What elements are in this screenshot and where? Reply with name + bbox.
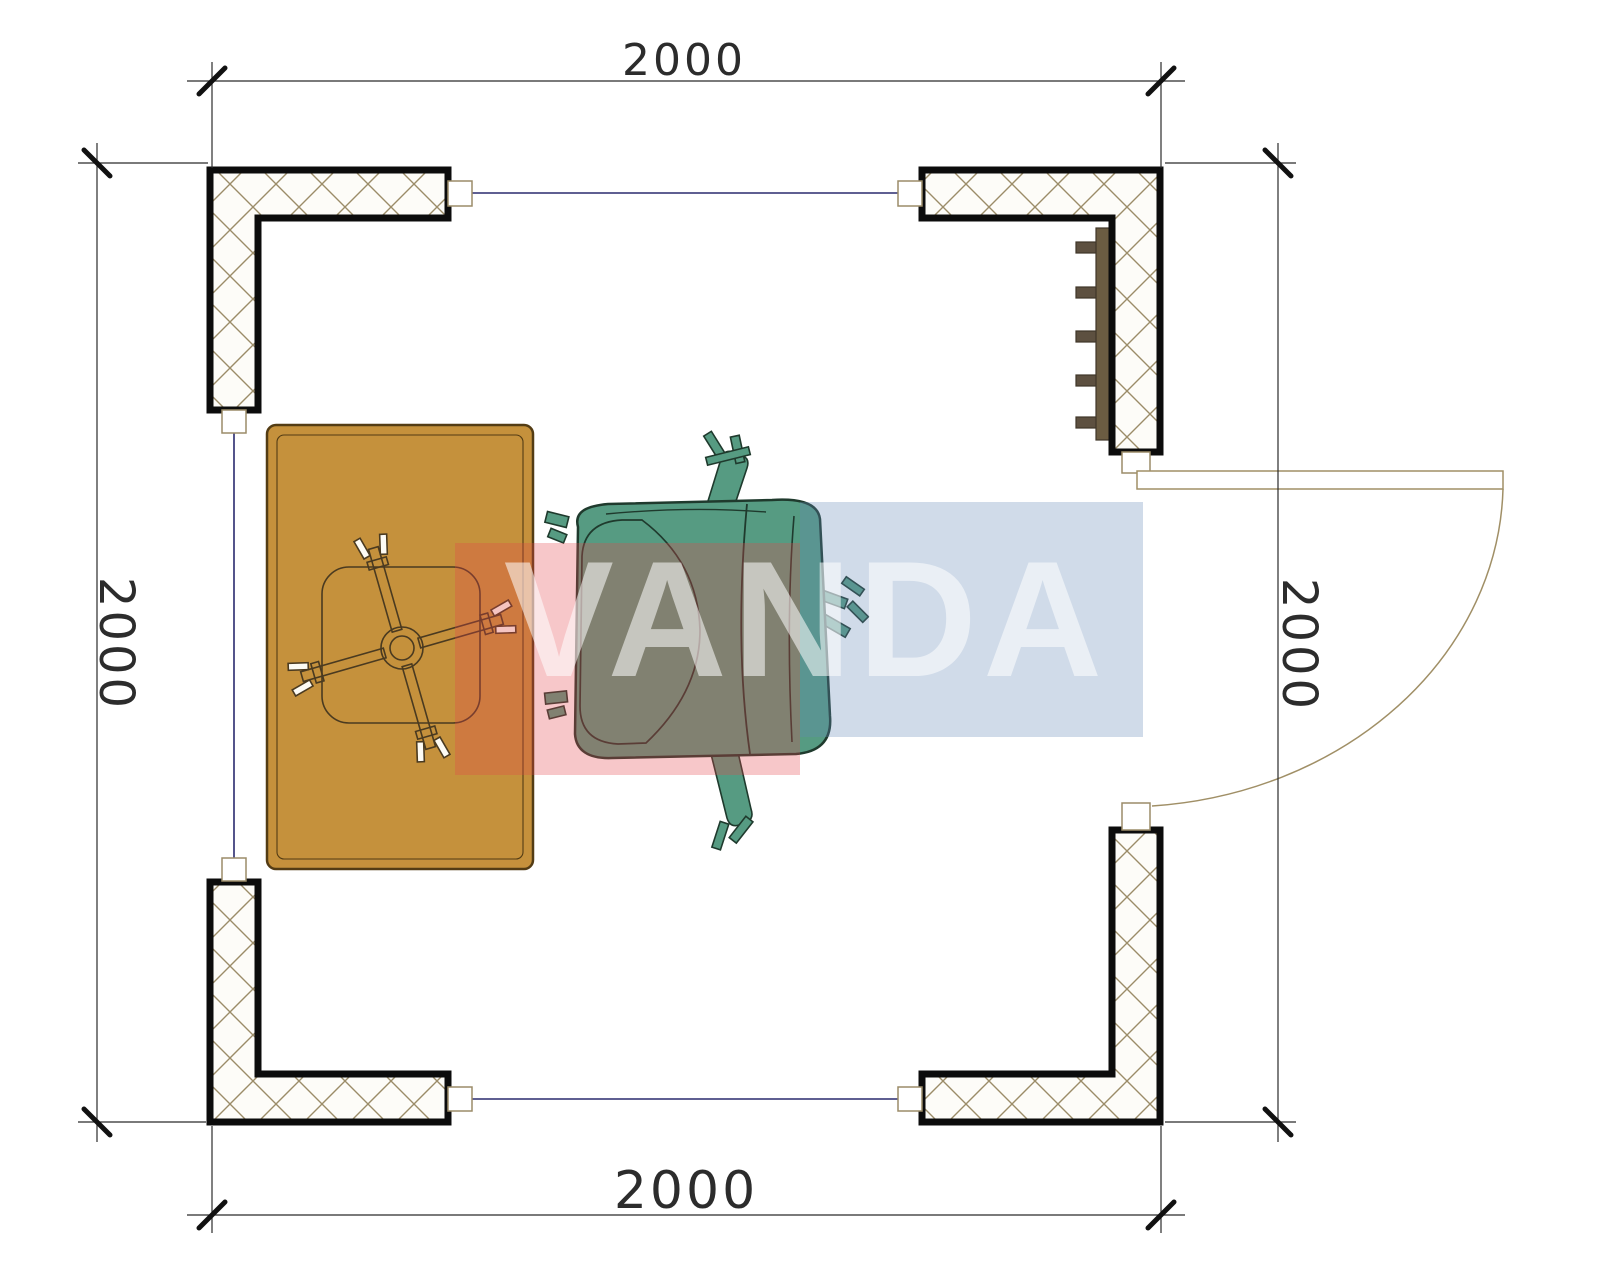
wall-corner-bottom-right: [922, 830, 1160, 1122]
watermark-text: VANDA: [504, 527, 1108, 711]
wall-corner-top-right: [922, 170, 1160, 452]
connector: [898, 1087, 922, 1111]
shelf-bracket: [1076, 375, 1097, 386]
shelf-bracket: [1076, 417, 1097, 428]
wall-corner-bottom-left: [210, 882, 448, 1122]
door-leaf: [1137, 471, 1503, 489]
dim-label-bottom: 2000: [614, 1161, 758, 1221]
watermark: VANDA: [455, 502, 1143, 775]
dim-label-left: 2000: [88, 577, 144, 711]
connector: [448, 181, 472, 206]
connector: [448, 1087, 472, 1111]
connector: [222, 858, 246, 881]
wall-shelf: [1076, 228, 1113, 440]
dim-label-top: 2000: [622, 35, 746, 86]
door-frame-connector-top: [1122, 452, 1150, 473]
shelf-bracket: [1076, 287, 1097, 298]
door-frame-connector-bottom: [1122, 803, 1150, 830]
connector: [898, 181, 922, 206]
shelf-bracket: [1076, 242, 1097, 253]
dim-label-right: 2000: [1271, 578, 1327, 712]
wall-corner-top-left: [210, 170, 448, 410]
floor-plan-svg: 2000 2000 2000 2000 VANDA: [0, 0, 1600, 1280]
shelf-bracket: [1076, 331, 1097, 342]
floor-plan-drawing: 2000 2000 2000 2000 VANDA: [0, 0, 1600, 1280]
connector: [222, 410, 246, 433]
